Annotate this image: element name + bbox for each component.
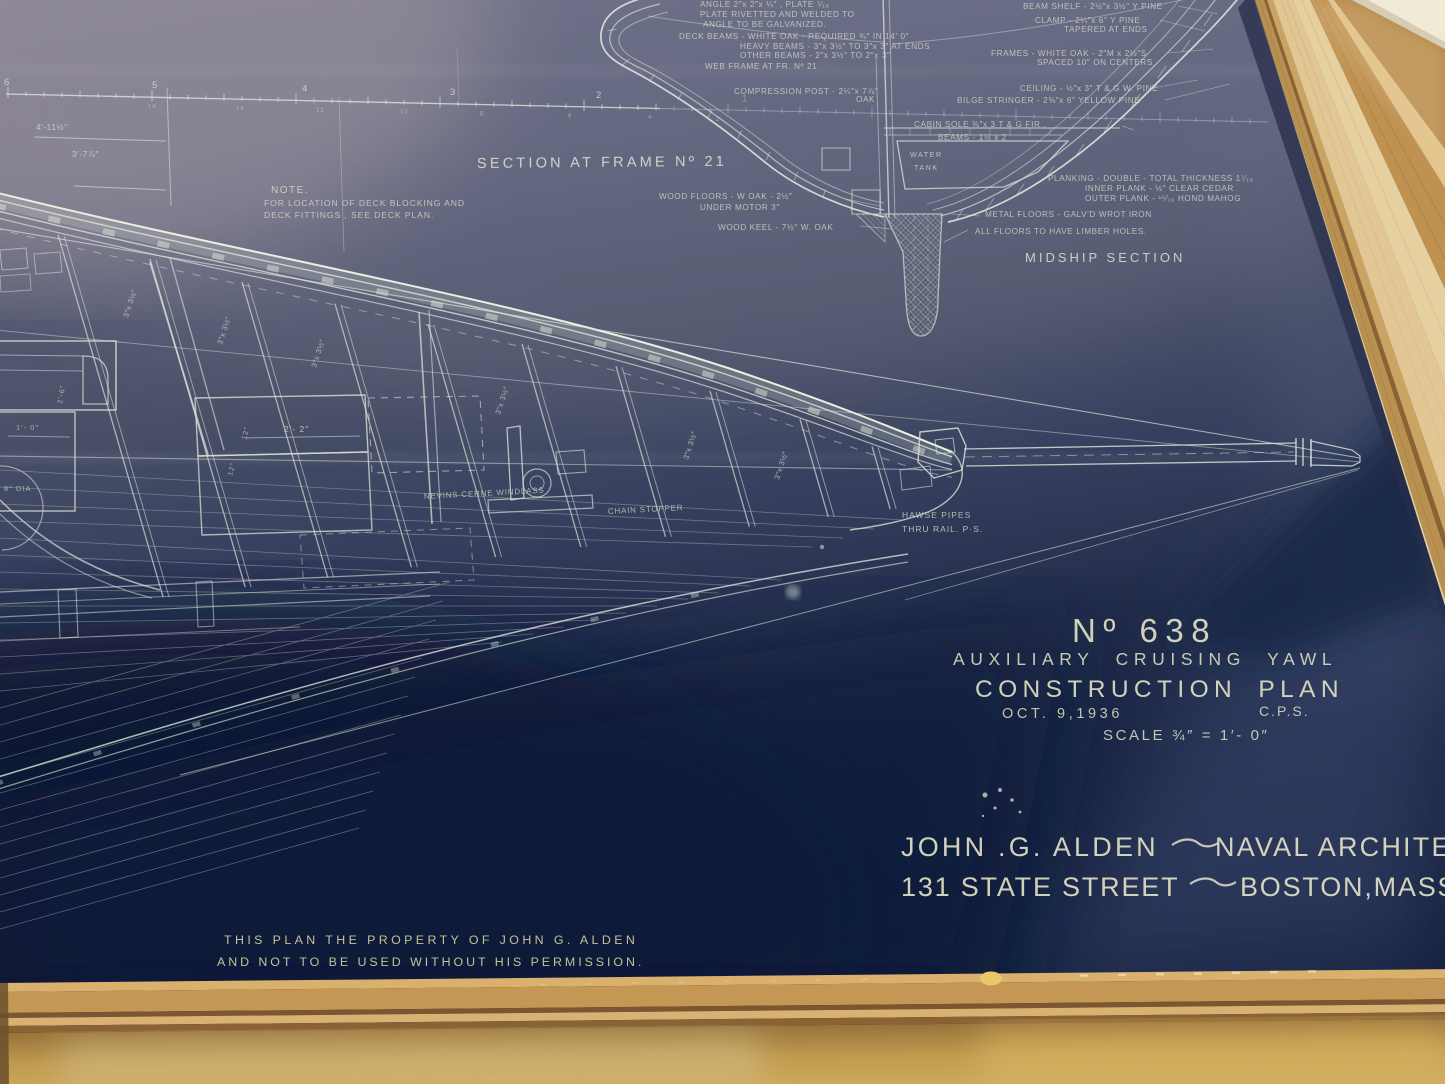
svg-text:METAL FLOORS - GALV′D WROT: METAL FLOORS - GALV′D WROT IRON: [985, 210, 1152, 219]
svg-text:1′- 0″: 1′- 0″: [16, 423, 39, 432]
svg-text:Nº 638: Nº 638: [1072, 612, 1217, 649]
svg-text:OCT. 9,1936: OCT. 9,1936: [1002, 706, 1123, 722]
svg-text:WOOD KEEL - 7½″ W. OAK: WOOD KEEL - 7½″ W. OAK: [718, 223, 833, 232]
svg-text:6: 6: [4, 77, 10, 88]
svg-text:2: 2: [596, 90, 602, 101]
svg-text:4: 4: [302, 84, 308, 95]
svg-text:CLAMP - 2¼″x 6″ Y PINE: CLAMP - 2¼″x 6″ Y PINE: [1035, 16, 1140, 25]
svg-text:AND NOT TO BE USED WITHOUT HIS: AND NOT TO BE USED WITHOUT HIS PERMISSIO…: [217, 955, 644, 969]
svg-text:FOR LOCATION OF DECK BLOCKING: FOR LOCATION OF DECK BLOCKING AND: [264, 198, 465, 208]
svg-text:2′- 2″: 2′- 2″: [284, 424, 309, 434]
svg-text:SCALE ¾″ = 1′- 0″: SCALE ¾″ = 1′- 0″: [1103, 727, 1269, 744]
svg-text:3′-7⅞″: 3′-7⅞″: [72, 149, 99, 159]
svg-text:DECK FITTINGS , SEE DECK PLAN.: DECK FITTINGS , SEE DECK PLAN.: [264, 210, 434, 220]
svg-text:HEAVY BEAMS - 3″x 3½″ TO 3″x 3: HEAVY BEAMS - 3″x 3½″ TO 3″x 3″ AT ENDS: [740, 42, 930, 51]
svg-text:CEILING - ½″x 3″ T & G W. PIN: CEILING - ½″x 3″ T & G W. PINE: [1020, 84, 1158, 93]
svg-text:WEB FRAME AT FR. Nº 21: WEB FRAME AT FR. Nº 21: [705, 62, 817, 71]
svg-text:PLANKING - DOUBLE - TOTAL THIC: PLANKING - DOUBLE - TOTAL THICKNESS 1⁷⁄₁…: [1048, 174, 1254, 183]
svg-text:DECK BEAMS - WHITE OAK - REQUI: DECK BEAMS - WHITE OAK - REQUIRED ¾″ IN …: [679, 32, 909, 41]
svg-text:WOOD FLOORS - W OAK - 2½″: WOOD FLOORS - W OAK - 2½″: [659, 192, 792, 201]
svg-text:NAVAL ARCHITECT: NAVAL ARCHITECT: [1215, 832, 1445, 862]
svg-text:TAPERED AT ENDS: TAPERED AT ENDS: [1064, 25, 1148, 34]
svg-text:SPACED 10″ ON CENTERS: SPACED 10″ ON CENTERS: [1037, 58, 1153, 67]
svg-text:PLATE RIVETTED AND WELDED TO: PLATE RIVETTED AND WELDED TO: [700, 10, 855, 19]
svg-text:UNDER MOTOR 3″: UNDER MOTOR 3″: [700, 203, 780, 212]
svg-text:ANGLE 2″x 2″x ¼″ , PLATE ⁷⁄₁: ANGLE 2″x 2″x ¼″ , PLATE ⁷⁄₁₆: [700, 0, 830, 9]
svg-text:14: 14: [236, 106, 245, 112]
svg-text:OUTER PLANK - ¹⁵⁄₁₆ HOND MAH: OUTER PLANK - ¹⁵⁄₁₆ HOND MAHOG: [1085, 194, 1241, 203]
svg-text:CONSTRUCTION PLAN: CONSTRUCTION PLAN: [975, 676, 1344, 703]
svg-text:FRAMES - WHITE OAK - 2″M x 2½: FRAMES - WHITE OAK - 2″M x 2½″S: [991, 49, 1147, 58]
svg-text:BEAMS - 1½ x 2: BEAMS - 1½ x 2: [938, 133, 1007, 142]
svg-text:12: 12: [316, 108, 325, 114]
svg-text:18: 18: [148, 104, 157, 110]
svg-text:BOSTON,MASS: BOSTON,MASS: [1240, 872, 1445, 902]
svg-text:3: 3: [450, 87, 456, 98]
svg-text:THRU RAIL. P·S.: THRU RAIL. P·S.: [902, 524, 983, 534]
svg-text:TANK: TANK: [914, 163, 939, 172]
svg-text:131 STATE STREET: 131 STATE STREET: [901, 872, 1179, 902]
svg-text:AUXILIARY CRUISING YAWL: AUXILIARY CRUISING YAWL: [953, 649, 1337, 669]
svg-text:4′-11½″: 4′-11½″: [36, 122, 68, 132]
svg-text:10: 10: [400, 110, 409, 116]
svg-text:6: 6: [568, 113, 572, 119]
svg-text:BEAM SHELF - 2½″x 3½″ Y PINE: BEAM SHELF - 2½″x 3½″ Y PINE: [1023, 2, 1163, 11]
svg-text:5: 5: [152, 80, 158, 91]
svg-text:NOTE.: NOTE.: [271, 185, 309, 196]
svg-text:OAK: OAK: [856, 95, 875, 104]
svg-text:THIS PLAN THE PROPERTY OF JOHN: THIS PLAN THE PROPERTY OF JOHN G. ALDEN: [224, 933, 638, 947]
svg-text:MIDSHIP SECTION: MIDSHIP SECTION: [1025, 250, 1185, 265]
svg-text:SECTION AT FRAME Nº 21: SECTION AT FRAME Nº 21: [477, 154, 727, 172]
svg-text:ANGLE TO BE GALVANIZED.: ANGLE TO BE GALVANIZED.: [703, 20, 826, 29]
svg-text:HAWSE PIPES: HAWSE PIPES: [902, 510, 971, 520]
svg-text:JOHN .G. ALDEN: JOHN .G. ALDEN: [901, 832, 1159, 862]
svg-text:CABIN SOLE ⅜″x 3 T & G FIR: CABIN SOLE ⅜″x 3 T & G FIR ,: [914, 120, 1046, 129]
svg-text:8: 8: [480, 112, 484, 118]
svg-text:WATER: WATER: [910, 150, 943, 159]
svg-text:OTHER BEAMS - 2″x 3½″ TO 2″x 3: OTHER BEAMS - 2″x 3½″ TO 2″x 3″: [740, 51, 890, 60]
svg-text:C.P.S.: C.P.S.: [1259, 703, 1310, 719]
svg-text:4: 4: [648, 115, 652, 121]
svg-text:BILGE STRINGER - 2⅜″x 6″ YELL: BILGE STRINGER - 2⅜″x 6″ YELLOW PINE: [957, 96, 1140, 105]
svg-text:INNER PLANK - ½″ CLEAR CEDAR: INNER PLANK - ½″ CLEAR CEDAR: [1085, 184, 1234, 193]
svg-text:ALL FLOORS TO HAVE LIMBER: ALL FLOORS TO HAVE LIMBER HOLES.: [975, 227, 1147, 236]
